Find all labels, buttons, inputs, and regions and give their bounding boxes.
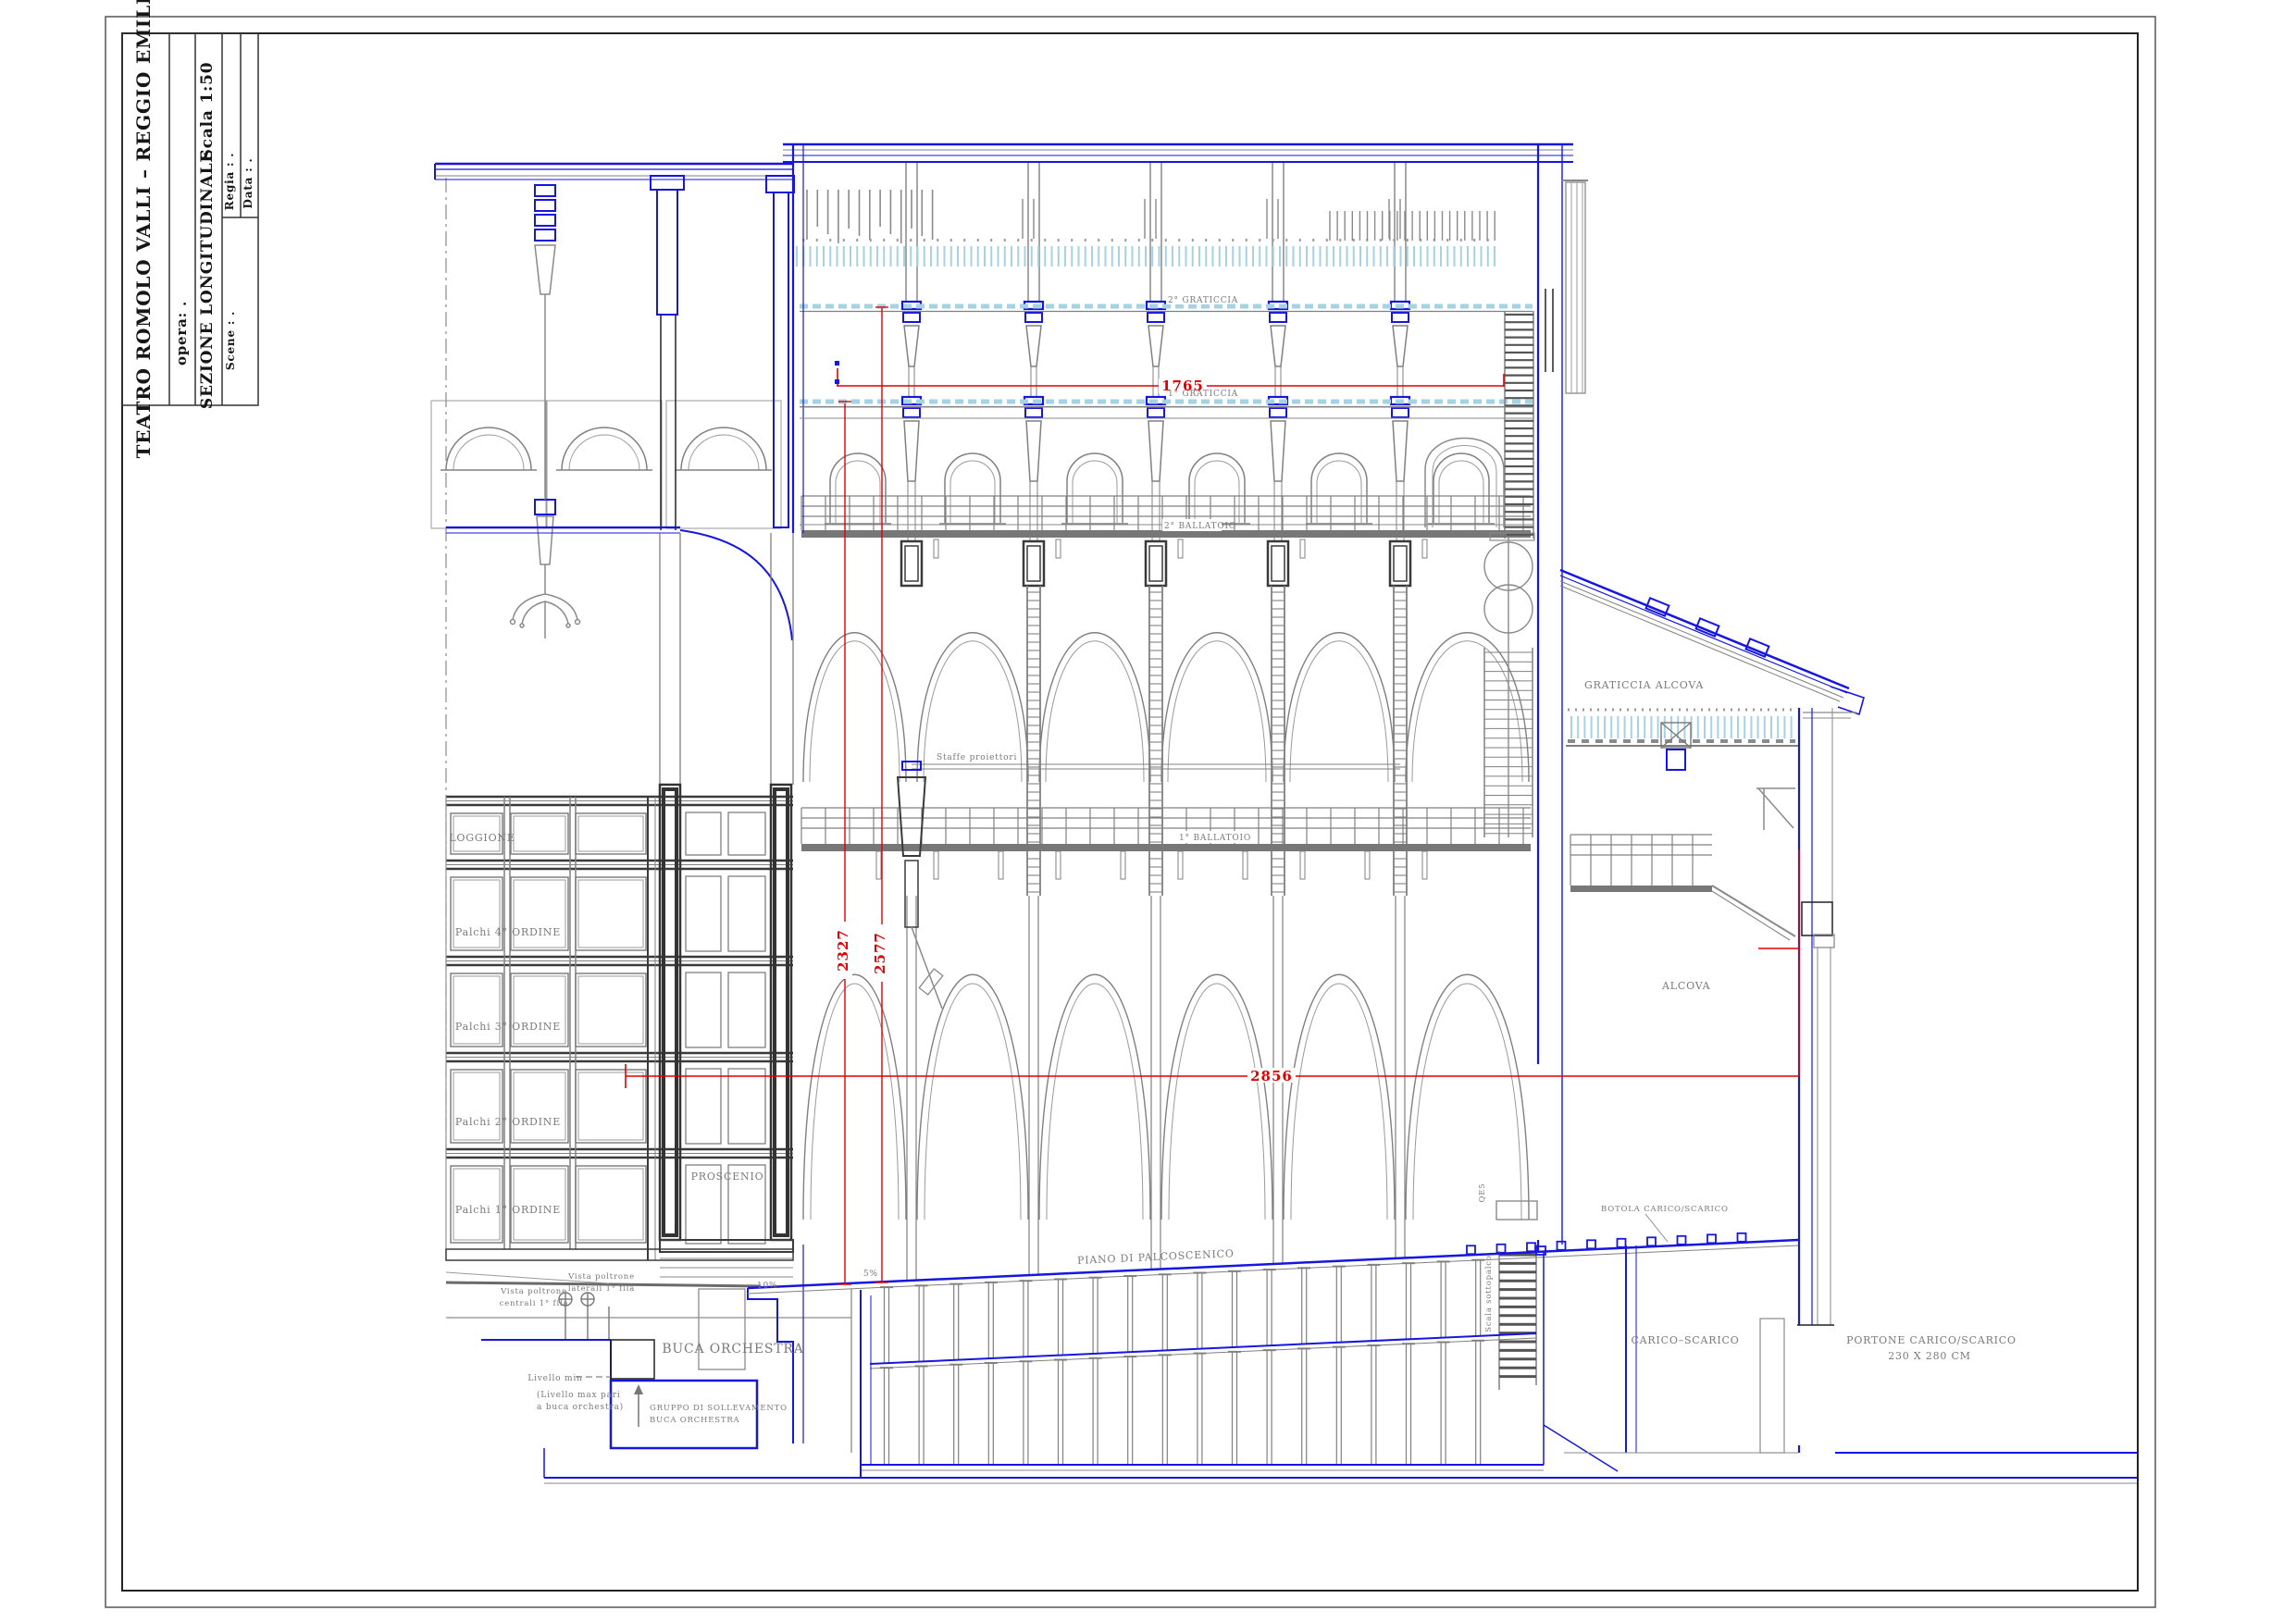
- label-qe: QE5: [1478, 1183, 1487, 1203]
- label-palchi-1: Palchi 1° ORDINE: [455, 1204, 561, 1216]
- opera-label: opera: .: [173, 301, 190, 365]
- section-drawing: TEATRO ROMOLO VALLI – REGGIO EMILIA oper…: [0, 0, 2296, 1623]
- label-proscenio: PROSCENIO: [691, 1171, 764, 1183]
- scene-label: Scene : .: [224, 311, 237, 370]
- label-vista-laterali-1: Vista poltrone: [567, 1272, 635, 1282]
- label-loggione: LOGGIONE: [449, 832, 515, 844]
- generated-linework: [431, 163, 1795, 1465]
- label-gruppo-1: GRUPPO DI SOLLEVAMENTO: [650, 1404, 788, 1413]
- label-vista-centrali-2: centrali 1° fila: [500, 1299, 569, 1308]
- label-portone-2: 230 X 280 CM: [1888, 1350, 1971, 1362]
- label-alcova: ALCOVA: [1661, 980, 1711, 992]
- label-staffe-proiettori: Staffe proiettori: [937, 753, 1017, 762]
- label-scala-sottopalco: Scala sottopalco: [1484, 1255, 1494, 1332]
- drawing-sheet: TEATRO ROMOLO VALLI – REGGIO EMILIA oper…: [0, 0, 2296, 1623]
- label-vista-laterali-2: laterali 1° fila: [568, 1284, 635, 1294]
- label-palchi-3: Palchi 3° ORDINE: [455, 1021, 561, 1033]
- label-ballatoio-1: 1° BALLATOIO: [1179, 834, 1251, 843]
- label-backgrounds: [837, 294, 1296, 1083]
- auditorium-section: [435, 164, 2137, 1483]
- label-livello-max-1: (Livello max pari: [537, 1390, 621, 1400]
- label-slope-10: 10%: [757, 1282, 777, 1291]
- title-block-text: TEATRO ROMOLO VALLI – REGGIO EMILIA oper…: [132, 0, 254, 458]
- label-ballatoio-2: 2° BALLATOIO: [1164, 522, 1236, 531]
- dim-2327: 2327: [835, 929, 851, 972]
- label-vista-centrali-1: Vista poltrone: [500, 1287, 567, 1296]
- sheet-border: [105, 17, 2155, 1607]
- label-graticcia-alcova: GRATICCIA ALCOVA: [1584, 679, 1704, 691]
- label-botola: BOTOLA CARICO/SCARICO: [1601, 1205, 1729, 1214]
- alcova-section: [1496, 570, 2137, 1453]
- label-graticcia-2: 2° GRATICCIA: [1168, 296, 1238, 305]
- regia-label: Regia : .: [223, 153, 236, 211]
- label-portone-1: PORTONE CARICO/SCARICO: [1846, 1334, 2017, 1346]
- label-slope-5: 5%: [863, 1270, 878, 1279]
- scale-label: Scala 1:50: [198, 62, 217, 161]
- label-gruppo-2: BUCA ORCHESTRA: [650, 1416, 740, 1425]
- dim-2856: 2856: [1250, 1068, 1293, 1084]
- label-palchi-4: Palchi 4° ORDINE: [455, 926, 561, 938]
- label-livello-min: Livello min: [527, 1374, 582, 1383]
- label-carico-scarico: CARICO–SCARICO: [1631, 1334, 1739, 1346]
- label-buca-orchestra: BUCA ORCHESTRA: [662, 1342, 803, 1357]
- project-title: TEATRO ROMOLO VALLI – REGGIO EMILIA: [132, 0, 155, 458]
- label-livello-max-2: a buca orchestra): [537, 1402, 624, 1412]
- dim-1765: 1765: [1161, 378, 1204, 394]
- label-piano-palcoscenico: PIANO DI PALCOSCENICO: [1077, 1247, 1235, 1267]
- drawing-title: SEZIONE LONGITUDINALE: [198, 150, 217, 409]
- dim-2577: 2577: [872, 932, 888, 974]
- data-label: Data : .: [242, 158, 254, 209]
- label-palchi-2: Palchi 2° ORDINE: [455, 1116, 561, 1128]
